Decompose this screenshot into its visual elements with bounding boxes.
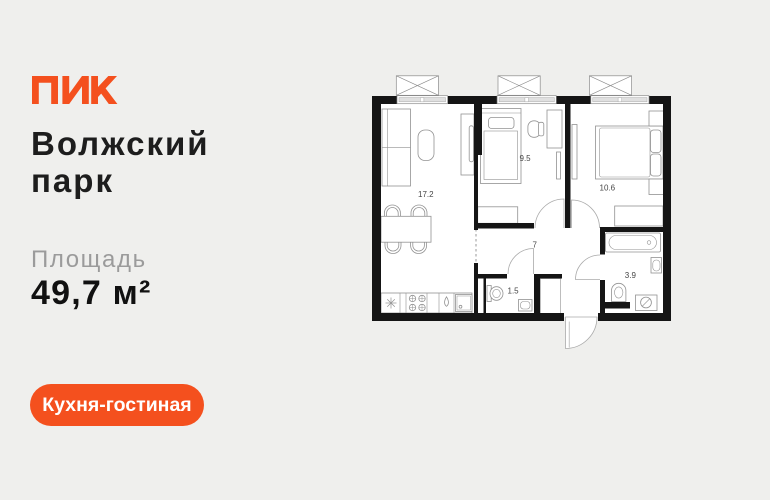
svg-text:7: 7 (533, 241, 538, 250)
svg-text:10.6: 10.6 (600, 184, 616, 193)
svg-text:1.5: 1.5 (508, 287, 520, 296)
svg-text:9.5: 9.5 (520, 154, 532, 163)
svg-text:17.2: 17.2 (418, 190, 434, 199)
svg-text:3.9: 3.9 (625, 271, 637, 280)
